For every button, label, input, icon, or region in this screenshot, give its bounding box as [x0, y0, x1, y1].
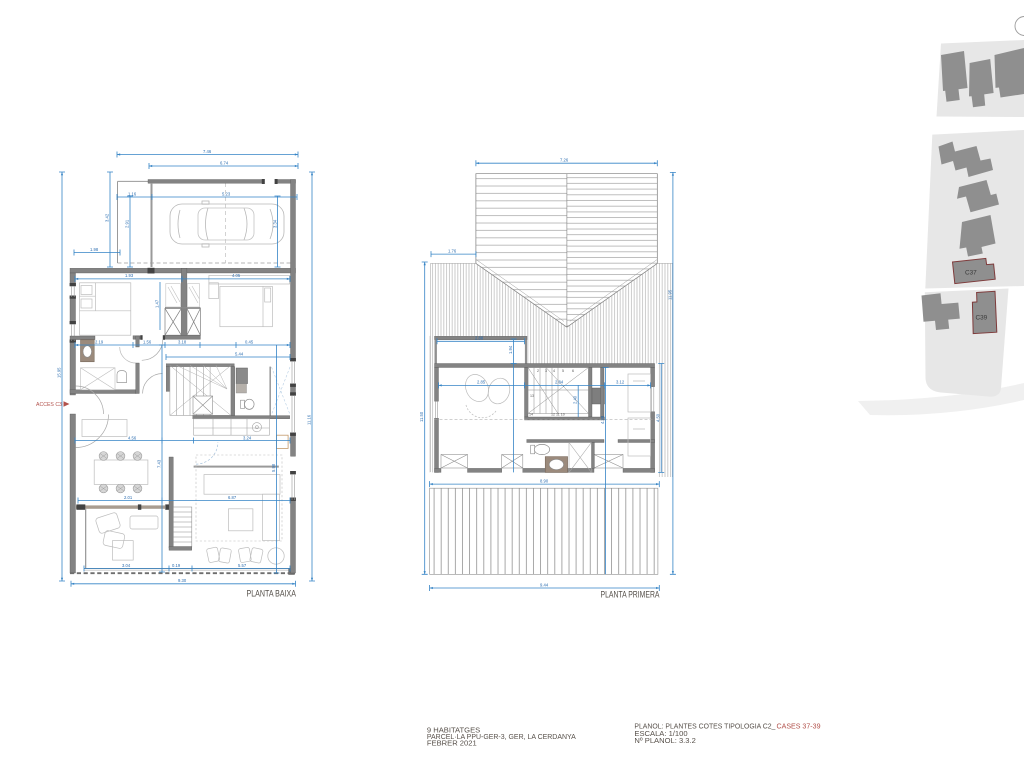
svg-text:8.90: 8.90: [540, 478, 549, 483]
svg-text:7.46: 7.46: [203, 149, 212, 154]
svg-text:4.05: 4.05: [232, 273, 241, 278]
svg-text:3.34: 3.34: [273, 219, 278, 228]
svg-text:FEBRER 2021: FEBRER 2021: [427, 739, 477, 748]
svg-text:3.42: 3.42: [105, 213, 110, 222]
svg-text:6.74: 6.74: [220, 160, 229, 165]
svg-text:5.44: 5.44: [235, 351, 244, 356]
svg-text:PLANTA PRIMERA: PLANTA PRIMERA: [601, 589, 660, 599]
svg-text:0.19: 0.19: [172, 563, 181, 568]
svg-text:4: 4: [553, 369, 555, 373]
svg-text:5.98: 5.98: [271, 463, 276, 472]
svg-text:2.40: 2.40: [573, 395, 578, 404]
svg-text:2.88: 2.88: [475, 336, 484, 341]
svg-text:5.57: 5.57: [238, 563, 247, 568]
svg-text:11.95: 11.95: [667, 289, 672, 300]
svg-text:2.01: 2.01: [124, 495, 133, 500]
svg-text:5.23: 5.23: [222, 191, 231, 196]
svg-text:1.93: 1.93: [125, 273, 134, 278]
svg-text:2.85: 2.85: [477, 380, 486, 385]
svg-text:1.16: 1.16: [128, 191, 137, 196]
svg-text:3.12: 3.12: [616, 380, 625, 385]
svg-text:6: 6: [572, 369, 574, 373]
svg-text:6.87: 6.87: [228, 495, 237, 500]
svg-text:3.18: 3.18: [178, 339, 187, 344]
svg-text:1.94: 1.94: [508, 345, 513, 354]
svg-text:3.04: 3.04: [122, 563, 131, 568]
svg-text:14: 14: [529, 413, 533, 417]
svg-text:12 11 10: 12 11 10: [551, 413, 565, 417]
svg-text:0.45: 0.45: [245, 339, 254, 344]
svg-text:1.47: 1.47: [155, 299, 160, 308]
svg-text:1.98: 1.98: [90, 247, 99, 252]
svg-text:2.19: 2.19: [95, 339, 104, 344]
svg-text:Nº PLANOL: 3.3.2: Nº PLANOL: 3.3.2: [634, 736, 695, 745]
svg-text:2.84: 2.84: [555, 380, 564, 385]
svg-text:C37: C37: [965, 270, 977, 277]
svg-text:15.95: 15.95: [57, 367, 62, 378]
svg-text:1.76: 1.76: [448, 248, 457, 253]
svg-text:C39: C39: [976, 315, 988, 322]
svg-text:3: 3: [545, 369, 547, 373]
svg-text:7.26: 7.26: [560, 158, 569, 163]
svg-text:1.56: 1.56: [143, 339, 152, 344]
svg-text:PLANTA BAIXA: PLANTA BAIXA: [247, 589, 297, 599]
svg-text:13: 13: [530, 394, 534, 398]
svg-text:7.43: 7.43: [157, 459, 162, 468]
svg-text:9.30: 9.30: [178, 578, 187, 583]
svg-text:CASES 37-39: CASES 37-39: [777, 722, 821, 731]
svg-text:11.16: 11.16: [307, 414, 312, 425]
svg-text:2.91: 2.91: [125, 219, 130, 228]
svg-text:3.24: 3.24: [243, 435, 252, 440]
svg-text:4.50: 4.50: [656, 413, 661, 422]
svg-text:4.56: 4.56: [128, 435, 137, 440]
svg-text:4.38: 4.38: [600, 415, 605, 424]
svg-text:11.50: 11.50: [419, 411, 424, 422]
svg-text:9.44: 9.44: [540, 582, 549, 587]
svg-text:5: 5: [562, 369, 564, 373]
svg-text:ACCES C3: ACCES C3: [36, 402, 62, 408]
svg-text:2: 2: [537, 369, 539, 373]
